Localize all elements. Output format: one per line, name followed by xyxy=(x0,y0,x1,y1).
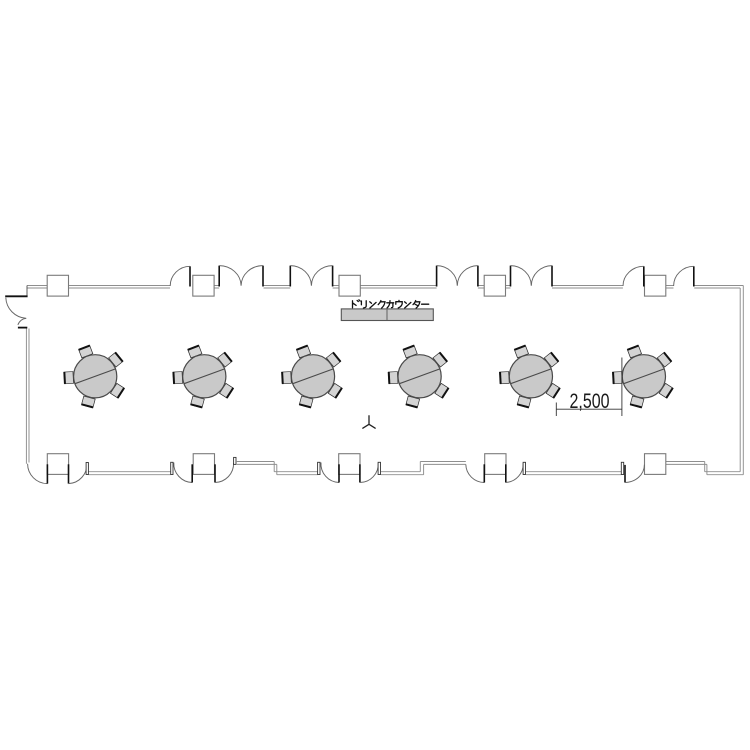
svg-text:2,500: 2,500 xyxy=(570,390,610,413)
